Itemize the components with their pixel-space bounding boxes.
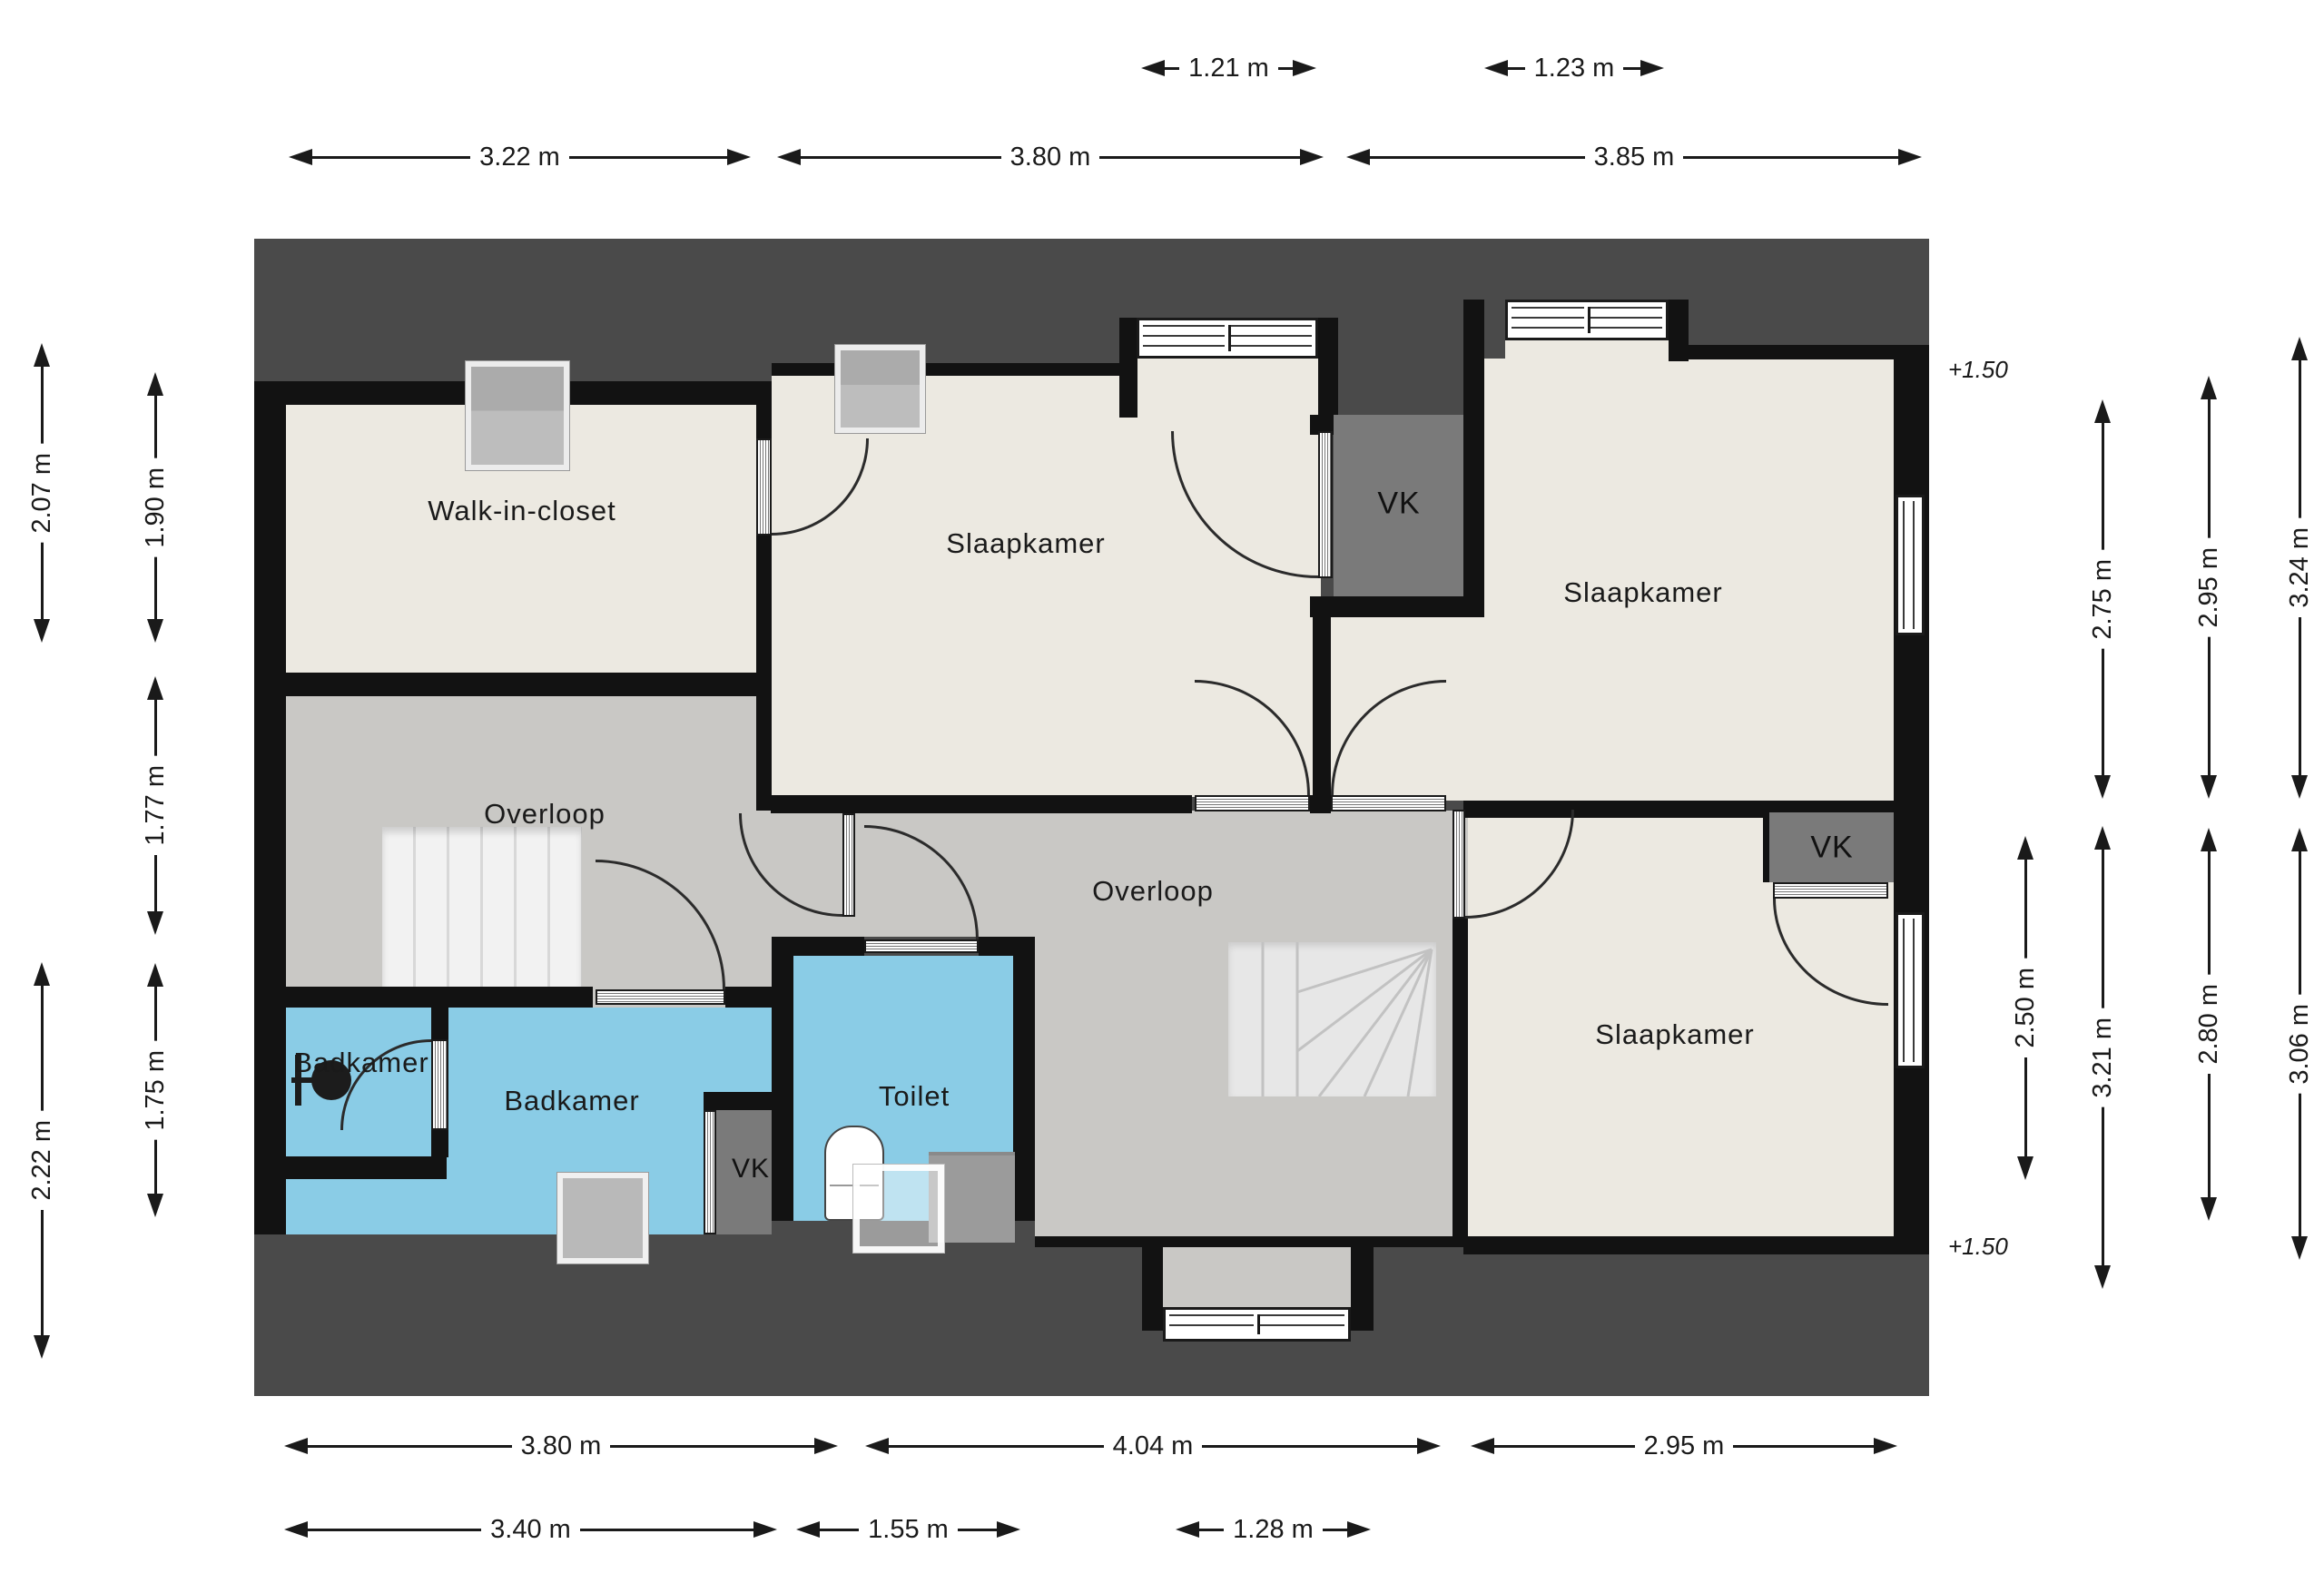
dim-line [2102,648,2104,775]
dim-text: 1.77 m [141,756,171,855]
arrow-up-icon [2094,826,2111,850]
wall-sk3-bottom [1463,1236,1929,1254]
dim-line [41,542,44,619]
wall-dormer1-right-stub [1318,318,1338,418]
arrow-right-icon [1898,149,1922,165]
dim-line [820,1529,859,1531]
door-sk3 [1452,810,1465,919]
dim-line [1202,1445,1417,1448]
arrow-up-icon [2201,376,2217,399]
arrow-down-icon [2094,1265,2111,1289]
dim-text: 2.95 m [2194,538,2224,637]
wall-toilet-top-left [793,937,864,956]
dim-text: 1.28 m [1224,1515,1323,1545]
winder-staircase [1228,942,1436,1096]
arrow-right-icon [1300,149,1324,165]
dim-line [154,556,157,619]
dim-line [889,1445,1104,1448]
dim-text: 1.75 m [141,1041,171,1140]
dim-left-1-77: 1.77 m [142,676,169,935]
dim-right-3-06: 3.06 m [2286,828,2313,1260]
wall-bottom-dormer-right-stub [1351,1236,1374,1331]
arrow-left-icon [796,1521,820,1538]
dim-line [2208,636,2211,775]
dim-text: 1.90 m [141,458,171,557]
dim-text: 1.21 m [1179,54,1278,84]
arrow-right-icon [814,1438,838,1454]
door-corridor-sk2 [1331,795,1446,811]
dim-left-1-75: 1.75 m [142,963,169,1217]
dim-text: 2.50 m [2011,959,2041,1057]
dim-line [154,1139,157,1194]
dim-bottom-1-28: 1.28 m [1176,1516,1371,1543]
dim-line [2024,860,2027,959]
dim-text: 1.23 m [1525,54,1624,84]
dim-text: 3.80 m [512,1431,611,1461]
wall-toilet-left [772,937,793,1221]
dim-line [1370,156,1585,159]
level-marker-bottom: +1.50 [1948,1233,2008,1261]
dim-line [154,700,157,756]
dim-left-1-90: 1.90 m [142,372,169,643]
dim-bottom-2-95: 2.95 m [1471,1432,1897,1460]
dim-line [2208,1074,2211,1197]
arrow-down-icon [147,1194,163,1217]
dim-text: 2.75 m [2088,550,2118,649]
room-label-slaapkamer-bottom: Slaapkamer [1595,1018,1754,1051]
door-vk-middle [704,1110,716,1234]
wall-vk1-bottom [1310,596,1484,617]
room-label-slaapkamer-right: Slaapkamer [1563,576,1722,609]
wall-bath-top-right [725,987,772,1008]
arrow-down-icon [147,619,163,643]
wall-overloop-sk1 [756,696,772,811]
door-sk1-corridor [842,813,855,917]
room-label-walk-in-closet: Walk-in-closet [428,495,616,527]
dim-text: 4.04 m [1104,1431,1203,1461]
window-pane [1169,1314,1254,1334]
closet-label-vk-right: VK [1810,831,1853,866]
dim-line [312,156,470,159]
arrow-right-icon [1874,1438,1897,1454]
room-label-badkamer-small: Badkamer [293,1047,428,1079]
winder-steps-icon [1228,942,1436,1096]
arrow-left-icon [284,1438,308,1454]
dim-right-2-50: 2.50 m [2012,836,2039,1180]
dim-right-2-95: 2.95 m [2195,376,2222,799]
dim-text: 3.40 m [481,1515,580,1545]
dim-top-3-22: 3.22 m [289,143,751,171]
dim-line [1199,1529,1224,1531]
dim-line [2102,1106,2104,1265]
bottom-dormer-floor [1163,1245,1351,1316]
dim-line [2102,850,2104,1008]
wall-bottom-dormer-left-stub [1142,1236,1163,1331]
wall-right-outer [1894,345,1929,1254]
arrow-down-icon [2291,1236,2308,1260]
window-pane [1228,325,1313,351]
wall-toilet-right [1013,937,1035,1221]
window-pane [1143,325,1225,351]
door-toilet [864,939,979,953]
dim-line [308,1445,512,1448]
dim-bottom-4-04: 4.04 m [865,1432,1441,1460]
arrow-down-icon [34,619,50,643]
dim-line [1733,1445,1874,1448]
dim-line [2299,617,2301,775]
wall-sk3-left [1452,919,1468,1236]
arrow-down-icon [2017,1156,2033,1180]
dim-line [1508,67,1525,70]
door-vk-right [1773,882,1888,899]
dim-line [801,156,1001,159]
washer-icon [557,1173,648,1264]
arrow-up-icon [2291,337,2308,360]
closet-label-vk-middle: VK [732,1154,770,1185]
arrow-left-icon [777,149,801,165]
wall-wic-right-upper [756,405,772,438]
arrow-right-icon [1417,1438,1441,1454]
dim-line [2299,1093,2301,1236]
dim-line [1683,156,1898,159]
dim-text: 3.06 m [2285,995,2315,1094]
window-pane [1257,1314,1344,1334]
room-label-overloop-center: Overloop [1092,875,1214,908]
dormer1-floor [1137,359,1318,379]
dim-line [2208,851,2211,975]
window-right-lower [1896,912,1925,1068]
arrow-right-icon [1347,1521,1371,1538]
wall-corridor-bottom [1035,1236,1463,1247]
arrow-left-icon [284,1521,308,1538]
dim-right-3-24: 3.24 m [2286,337,2313,799]
dim-line [41,1210,44,1335]
dim-right-2-75: 2.75 m [2089,399,2116,799]
arrow-right-icon [1293,60,1316,76]
dim-line [154,396,157,458]
wall-sk1-vk-column [1313,616,1331,797]
skylight-slaapkamer-top [835,345,925,433]
arrow-left-icon [1484,60,1508,76]
arrow-up-icon [147,676,163,700]
dim-line [610,1445,814,1448]
wall-sk1-top [772,363,1119,376]
dim-text: 1.55 m [859,1515,958,1545]
arrow-down-icon [2201,1197,2217,1221]
level-marker-top: +1.50 [1948,356,2008,384]
arrow-down-icon [147,911,163,935]
dim-line [1494,1445,1635,1448]
room-label-overloop-left: Overloop [484,798,606,831]
dim-right-2-80: 2.80 m [2195,828,2222,1221]
dim-line [154,855,157,911]
dim-line [2299,360,2301,518]
arrow-left-icon [1346,149,1370,165]
dim-line [1165,67,1179,70]
wall-sk2-left [1463,300,1484,596]
floorplan-canvas: Walk-in-closet Slaapkamer Slaapkamer Sla… [0,0,2324,1593]
door-badkamer-small [431,1039,448,1130]
dim-bottom-1-55: 1.55 m [796,1516,1020,1543]
arrow-up-icon [147,372,163,396]
arrow-up-icon [34,962,50,986]
dim-line [1323,1529,1347,1531]
arrow-up-icon [2094,399,2111,423]
window-right-upper [1896,495,1925,635]
dim-line [2208,399,2211,538]
room-label-toilet: Toilet [879,1080,950,1113]
arrow-up-icon [147,963,163,987]
window-bottom-dormer [1163,1307,1351,1342]
dim-right-3-21: 3.21 m [2089,826,2116,1289]
arrow-down-icon [34,1335,50,1359]
wall-corridor-top-left [771,795,1192,813]
dim-line [580,1529,753,1531]
shower-tray-icon [853,1165,944,1253]
wall-left-outer [254,381,286,1234]
dim-line [41,367,44,444]
dormer2-floor [1505,340,1669,360]
wall-sk2-top [1689,345,1894,359]
dim-line [2024,1057,2027,1156]
dim-left-2-22: 2.22 m [28,962,55,1359]
window-pane [1588,307,1663,333]
window-pane [1903,919,1917,1062]
arrow-left-icon [289,149,312,165]
window-pane [1512,307,1584,333]
dim-text: 2.22 m [27,1111,57,1210]
arrow-down-icon [2094,775,2111,799]
wall-dormer2-right-stub [1669,300,1689,361]
dim-text: 3.22 m [470,143,569,172]
arrow-right-icon [753,1521,777,1538]
arrow-left-icon [865,1438,889,1454]
dim-line [1278,67,1293,70]
window-dormer2 [1505,300,1669,340]
closet-label-vk-top: VK [1377,487,1420,522]
arrow-up-icon [2017,836,2033,860]
dim-text: 2.80 m [2194,975,2224,1074]
dim-bottom-3-80: 3.80 m [284,1432,838,1460]
dim-line [1623,67,1640,70]
arrow-left-icon [1141,60,1165,76]
wall-badkamer-door-stub-top [431,1008,448,1039]
arrow-right-icon [1640,60,1664,76]
dim-text: 3.80 m [1001,143,1100,172]
dim-top-1-21: 1.21 m [1141,54,1316,82]
dim-text: 3.24 m [2285,518,2315,617]
dim-top-3-80: 3.80 m [777,143,1324,171]
door-wic [756,438,772,536]
arrow-left-icon [1176,1521,1199,1538]
dim-left-2-07: 2.07 m [28,343,55,643]
room-label-badkamer: Badkamer [504,1085,639,1117]
window-dormer1 [1137,318,1318,359]
wall-vk3-left [1763,812,1769,882]
wall-dormer1-left-stub [1119,318,1137,418]
dim-text: 2.95 m [1635,1431,1734,1461]
dim-line [1099,156,1300,159]
dim-text: 2.07 m [27,444,57,543]
dim-line [569,156,727,159]
dim-line [41,986,44,1111]
dim-line [2299,851,2301,995]
arrow-down-icon [2201,775,2217,799]
dim-text: 3.21 m [2088,1008,2118,1107]
arrow-up-icon [2201,828,2217,851]
dim-top-1-23: 1.23 m [1484,54,1664,82]
arrow-down-icon [2291,775,2308,799]
arrow-up-icon [34,343,50,367]
dim-line [308,1529,481,1531]
dim-top-3-85: 3.85 m [1346,143,1922,171]
dim-bottom-3-40: 3.40 m [284,1516,777,1543]
skylight-walk-in-closet [466,361,569,470]
dim-text: 3.85 m [1585,143,1684,172]
arrow-up-icon [2291,828,2308,851]
dim-line [154,987,157,1041]
straight-staircase [382,827,582,987]
window-pane [1903,501,1917,629]
wall-vk2-top [704,1092,780,1110]
arrow-left-icon [1471,1438,1494,1454]
door-vk-top [1318,431,1333,578]
wall-wic-bottom [254,673,772,696]
dim-line [958,1529,997,1531]
arrow-right-icon [997,1521,1020,1538]
wall-badkamer-small-bottom [254,1156,447,1179]
dim-line [2102,423,2104,550]
room-label-slaapkamer-top: Slaapkamer [946,527,1105,560]
wall-bath-top-left [254,987,593,1008]
arrow-right-icon [727,149,751,165]
door-badkamer [596,989,725,1005]
wall-badkamer-door-stub-bottom [431,1130,448,1157]
door-corridor-sk1 [1195,795,1310,811]
wall-corridor-stub-mid [1310,795,1331,813]
